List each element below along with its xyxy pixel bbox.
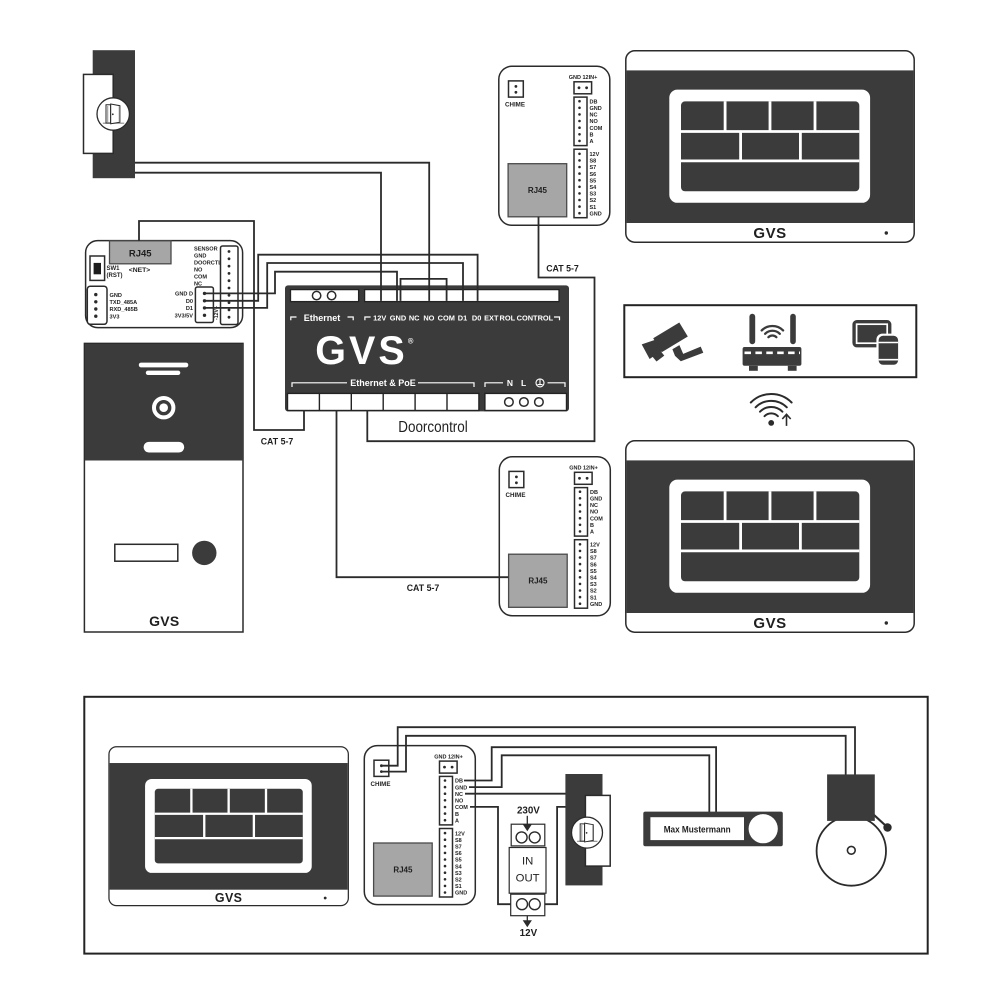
- svg-text:NC: NC: [409, 313, 420, 322]
- svg-text:ROL: ROL: [499, 313, 515, 322]
- svg-text:®: ®: [408, 337, 414, 346]
- svg-text:D1: D1: [186, 306, 193, 312]
- svg-text:NO: NO: [194, 268, 203, 274]
- svg-text:CAT 5-7: CAT 5-7: [261, 437, 294, 447]
- svg-text:GVS: GVS: [315, 329, 407, 373]
- svg-text:COM: COM: [194, 275, 207, 281]
- svg-text:RXD_485B: RXD_485B: [110, 307, 138, 313]
- svg-text:CAT 5-7: CAT 5-7: [407, 583, 440, 593]
- svg-text:GND D: GND D: [175, 292, 193, 298]
- svg-text:OUT: OUT: [516, 873, 540, 885]
- svg-text:GND: GND: [110, 293, 122, 299]
- svg-text:RJ45: RJ45: [129, 249, 152, 260]
- svg-text:CONTROL: CONTROL: [517, 313, 554, 322]
- svg-text:TXD_485A: TXD_485A: [110, 300, 138, 306]
- svg-text:Doorcontrol: Doorcontrol: [398, 419, 468, 436]
- svg-text:D0: D0: [472, 313, 481, 322]
- svg-text:GND: GND: [390, 313, 407, 322]
- svg-text:IN: IN: [522, 856, 533, 868]
- svg-text:D0: D0: [186, 299, 193, 305]
- svg-text:3V3/5V: 3V3/5V: [175, 314, 194, 320]
- svg-text:N: N: [507, 378, 513, 388]
- svg-text:DOORCTL: DOORCTL: [194, 261, 222, 267]
- svg-text:L: L: [521, 378, 526, 388]
- svg-text:(RST): (RST): [107, 273, 123, 279]
- svg-text:Max Mustermann: Max Mustermann: [664, 824, 731, 835]
- svg-text:3V3: 3V3: [110, 314, 120, 320]
- svg-text:<NET>: <NET>: [129, 267, 151, 274]
- svg-text:CAT 5-7: CAT 5-7: [546, 263, 579, 273]
- svg-text:12V: 12V: [520, 928, 538, 939]
- svg-text:GND: GND: [194, 254, 206, 260]
- svg-text:NO: NO: [423, 313, 434, 322]
- svg-text:12V: 12V: [373, 313, 386, 322]
- svg-text:EXT: EXT: [484, 313, 499, 322]
- svg-text:SENSOR: SENSOR: [194, 247, 218, 253]
- svg-text:Ethernet: Ethernet: [304, 313, 341, 323]
- svg-text:GVS: GVS: [149, 613, 179, 629]
- svg-text:230V: 230V: [517, 805, 540, 816]
- svg-text:Ethernet & PoE: Ethernet & PoE: [350, 378, 416, 388]
- svg-text:COM: COM: [438, 313, 455, 322]
- svg-text:SW1: SW1: [107, 266, 121, 272]
- svg-text:D1: D1: [458, 313, 467, 322]
